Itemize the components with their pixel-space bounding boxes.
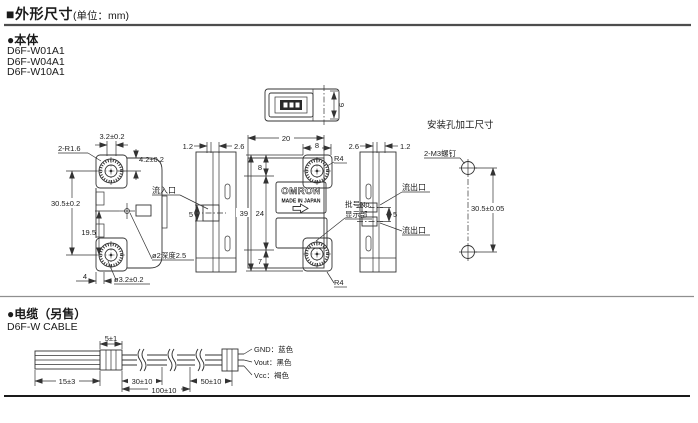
dim-segment-2: 100±10 (152, 386, 177, 395)
label-radius-bottom: R4 (334, 278, 344, 287)
label-radius-top: R4 (334, 154, 344, 163)
label-depth-hole: ø2深度2.5 (152, 250, 186, 260)
dim-depth: 9 (337, 103, 346, 107)
dim-tab-width: 8 (315, 141, 319, 150)
dim-top-width: 3.2±0.2 (100, 132, 125, 141)
made-in-japan-label: MADE IN JAPAN (281, 199, 320, 205)
dim-wall: 1.2 (400, 142, 410, 151)
dim-hole-offset: 4.2±0.2 (139, 155, 164, 164)
dim-center-hole: 19.5 (81, 228, 96, 237)
dim-bottom-offset: 4 (83, 272, 87, 281)
dim-body: 2.6 (234, 142, 244, 151)
dim-body: 2.6 (349, 142, 359, 151)
omron-logo: OMRON (281, 186, 320, 197)
dim-mid-height: 24 (256, 209, 264, 218)
mounting-title: 安装孔加工尺寸 (427, 119, 494, 131)
left-side-profile-view: 3.2±0.2 2-R1.6 4.2±0.2 30.5±0.2 19.5 4 ø… (49, 132, 194, 284)
dim-height: 39 (240, 209, 248, 218)
dim-bottom-height: 7 (258, 257, 262, 266)
datasheet-page: ■外形尺寸(单位：mm) ●本体 D6F-W01A1 D6F-W04A1 D6F… (0, 0, 698, 423)
top-view: 9 (265, 85, 346, 125)
wire-label-vcc: Vcc：褐色 (254, 370, 290, 380)
label-corner-radius: 2-R1.6 (58, 144, 81, 153)
label-hole-diameter: ø3.2±0.2 (114, 275, 144, 284)
dim-port-height: 5 (189, 210, 193, 219)
dim-strip-length: 5±1 (105, 334, 117, 343)
front-view: OMRON MADE IN JAPAN 20 8 R4 R4 (236, 133, 372, 287)
dim-port-pitch: 5 (393, 210, 397, 219)
cable-drawing: GND：蓝色 Vout：黑色 Vcc：褐色 5±1 15±3 30±10 100… (35, 334, 294, 395)
dim-width: 20 (282, 134, 290, 143)
label-mounting-screws: 2-M3螺钉 (424, 148, 457, 158)
dim-top-height: 8 (258, 163, 262, 172)
dim-segment-3: 50±10 (201, 377, 222, 386)
dim-lead-length: 15±3 (59, 377, 76, 386)
dim-hole-pitch: 30.5±0.2 (51, 199, 80, 208)
label-outlet-port-top: 流出口 (402, 182, 426, 192)
wire-label-gnd: GND：蓝色 (254, 344, 294, 354)
dimension-drawings: 3.2±0.2 2-R1.6 4.2±0.2 30.5±0.2 19.5 4 ø… (0, 0, 698, 423)
dim-mounting-pitch: 30.5±0.05 (471, 204, 504, 213)
dim-segment-1: 30±10 (132, 377, 153, 386)
label-lot-number-line2: 显示部 (345, 209, 368, 219)
dim-wall: 1.2 (183, 142, 193, 151)
label-inlet-port: 流入口 (152, 185, 176, 195)
mounting-hole-view: 安装孔加工尺寸 2-M3螺钉 30.5±0.05 (424, 119, 512, 261)
label-outlet-port-bottom: 流出口 (402, 225, 426, 235)
wire-label-vout: Vout：黑色 (254, 357, 292, 367)
flow-direction-arrow-icon (293, 204, 308, 213)
